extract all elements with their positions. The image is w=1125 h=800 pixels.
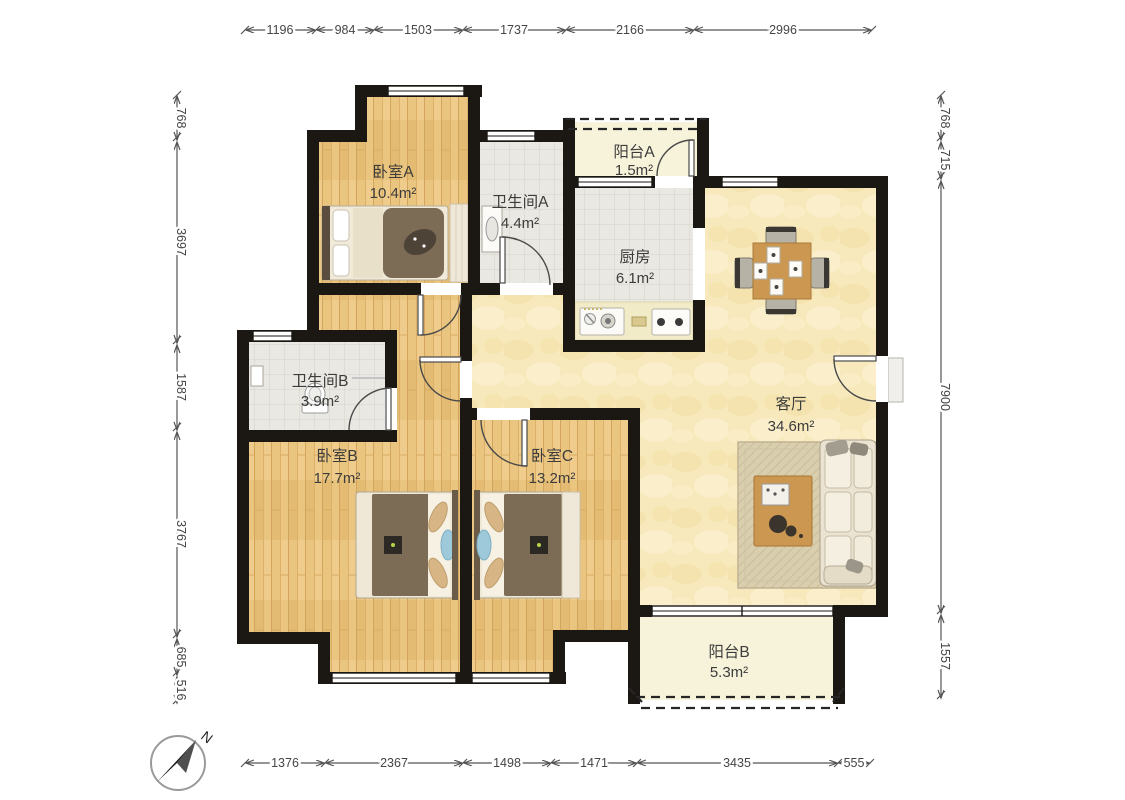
room-area-bathroom-b: 3.9m² [301, 393, 339, 410]
room-label-bathroom-a: 卫生间A [492, 193, 550, 211]
floor-plan-page: 卧室A 10.4m² 卫生间A 4.4m² 阳台A 1.5m² 厨房 6.1m²… [0, 0, 1125, 800]
compass-icon: N [151, 728, 216, 790]
window-living [722, 177, 778, 187]
room-area-bathroom-a: 4.4m² [501, 215, 539, 232]
dimensions-top: 1196 984 1503 1737 2166 2996 [241, 23, 876, 37]
svg-text:1471: 1471 [580, 756, 608, 770]
room-area-bedroom-a: 10.4m² [370, 185, 417, 202]
room-label-bedroom-a: 卧室A [372, 163, 414, 181]
double-bed-c-icon [474, 490, 580, 600]
room-area-bedroom-b: 17.7m² [314, 470, 361, 487]
svg-text:3435: 3435 [723, 756, 751, 770]
svg-text:3697: 3697 [174, 228, 188, 256]
double-bed-b-icon [356, 490, 458, 600]
window-bedroom-a [388, 86, 464, 96]
room-label-living: 客厅 [775, 395, 806, 413]
svg-text:984: 984 [335, 23, 356, 37]
svg-text:7900: 7900 [938, 383, 952, 411]
svg-text:1503: 1503 [404, 23, 432, 37]
svg-text:768: 768 [174, 108, 188, 129]
svg-text:3767: 3767 [174, 520, 188, 548]
svg-text:1557: 1557 [938, 642, 952, 670]
room-label-kitchen: 厨房 [619, 248, 650, 266]
svg-text:1737: 1737 [500, 23, 528, 37]
room-area-balcony-a: 1.5m² [615, 162, 653, 179]
floor-plan-svg: 卧室A 10.4m² 卫生间A 4.4m² 阳台A 1.5m² 厨房 6.1m²… [0, 0, 1125, 800]
svg-text:516: 516 [174, 680, 188, 701]
window-bathroom-b [253, 331, 292, 341]
svg-text:715: 715 [938, 150, 952, 171]
kitchen-counter-icon [575, 302, 693, 340]
svg-text:685: 685 [174, 647, 188, 668]
double-bed-a-icon [322, 204, 468, 282]
svg-text:1587: 1587 [174, 373, 188, 401]
bathroom-a-sink-icon [482, 206, 502, 252]
entrance-step [888, 358, 903, 402]
sofa-icon [820, 439, 876, 586]
svg-text:1196: 1196 [267, 23, 294, 37]
dimensions-right: 768 715 7900 1557 [937, 91, 952, 699]
svg-text:768: 768 [938, 108, 952, 129]
svg-text:2166: 2166 [616, 23, 644, 37]
compass-north-label: N [198, 728, 216, 747]
room-label-balcony-b: 阳台B [708, 643, 749, 661]
room-area-bedroom-c: 13.2m² [529, 470, 576, 487]
room-area-balcony-b: 5.3m² [710, 664, 748, 681]
svg-text:555: 555 [844, 756, 865, 770]
dimensions-left: 768 3697 1587 3767 685 516 [173, 91, 188, 704]
sliding-door-balcony-b [652, 606, 833, 616]
room-label-bedroom-b: 卧室B [316, 447, 357, 465]
window-bedroom-b [332, 673, 456, 683]
window-bathroom-a [487, 131, 535, 141]
room-label-bedroom-c: 卧室C [531, 447, 573, 465]
window-bedroom-c [472, 673, 550, 683]
svg-text:2996: 2996 [769, 23, 797, 37]
room-label-bathroom-b: 卫生间B [292, 372, 349, 390]
dimensions-bottom: 1376 2367 1498 1471 3435 555 [241, 756, 874, 770]
room-label-balcony-a: 阳台A [613, 143, 655, 161]
coffee-table-icon [754, 476, 812, 546]
room-area-kitchen: 6.1m² [616, 270, 654, 287]
svg-text:1498: 1498 [493, 756, 521, 770]
room-area-living: 34.6m² [768, 418, 815, 435]
svg-text:1376: 1376 [271, 756, 299, 770]
svg-text:2367: 2367 [380, 756, 408, 770]
